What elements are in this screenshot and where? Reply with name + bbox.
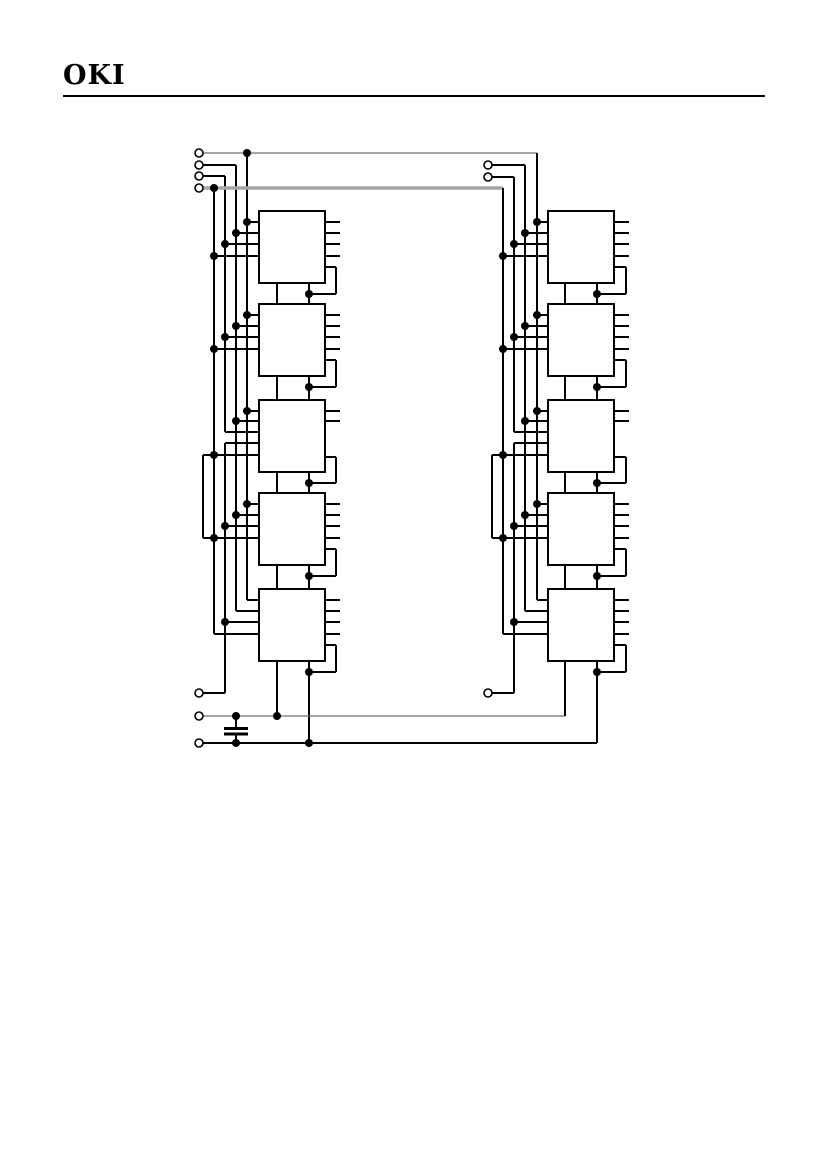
junction-dot	[243, 407, 251, 415]
terminal	[195, 739, 203, 747]
junction-dot	[210, 184, 218, 192]
junction-dot	[521, 322, 529, 330]
junction-dot	[593, 572, 601, 580]
ic-block	[548, 304, 614, 376]
terminal	[195, 149, 203, 157]
junction-dot	[273, 712, 281, 720]
junction-dot	[243, 149, 251, 157]
junction-dot	[305, 479, 313, 487]
junction-dot	[510, 618, 518, 626]
junction-dot	[305, 572, 313, 580]
ic-block	[548, 493, 614, 565]
junction-dot	[499, 345, 507, 353]
ic-block	[259, 589, 325, 661]
junction-dot	[243, 218, 251, 226]
junction-dot	[232, 417, 240, 425]
junction-dot	[533, 407, 541, 415]
ic-block	[259, 400, 325, 472]
junction-dot	[232, 712, 240, 720]
junction-dot	[499, 451, 507, 459]
terminal	[195, 689, 203, 697]
junction-dot	[221, 522, 229, 530]
junction-dot	[593, 383, 601, 391]
junction-dot	[510, 333, 518, 341]
junction-dot	[210, 534, 218, 542]
ic-block	[259, 304, 325, 376]
junction-dot	[305, 668, 313, 676]
ic-block	[548, 400, 614, 472]
capacitor-plate	[224, 733, 248, 736]
junction-dot	[510, 522, 518, 530]
junction-dot	[210, 252, 218, 260]
junction-dot	[305, 383, 313, 391]
junction-dot	[593, 290, 601, 298]
ic-block	[548, 211, 614, 283]
junction-dot	[593, 479, 601, 487]
junction-dot	[221, 618, 229, 626]
junction-dot	[593, 668, 601, 676]
junction-dot	[533, 500, 541, 508]
junction-dot	[221, 333, 229, 341]
junction-dot	[533, 218, 541, 226]
ic-block	[548, 589, 614, 661]
circuit-diagram	[0, 0, 826, 1169]
junction-dot	[305, 739, 313, 747]
ic-block	[259, 211, 325, 283]
terminal	[195, 712, 203, 720]
junction-dot	[210, 345, 218, 353]
junction-dot	[533, 311, 541, 319]
junction-dot	[510, 240, 518, 248]
junction-dot	[521, 417, 529, 425]
junction-dot	[232, 739, 240, 747]
terminal	[195, 161, 203, 169]
junction-dot	[232, 322, 240, 330]
terminal	[484, 173, 492, 181]
junction-dot	[243, 500, 251, 508]
terminal	[484, 161, 492, 169]
junction-dot	[221, 240, 229, 248]
junction-dot	[521, 229, 529, 237]
junction-dot	[521, 511, 529, 519]
junction-dot	[499, 534, 507, 542]
terminal	[484, 689, 492, 697]
terminal	[195, 172, 203, 180]
junction-dot	[210, 451, 218, 459]
terminal	[195, 184, 203, 192]
capacitor-plate	[224, 727, 248, 730]
junction-dot	[499, 252, 507, 260]
ic-block	[259, 493, 325, 565]
junction-dot	[232, 229, 240, 237]
junction-dot	[243, 311, 251, 319]
junction-dot	[232, 511, 240, 519]
junction-dot	[305, 290, 313, 298]
